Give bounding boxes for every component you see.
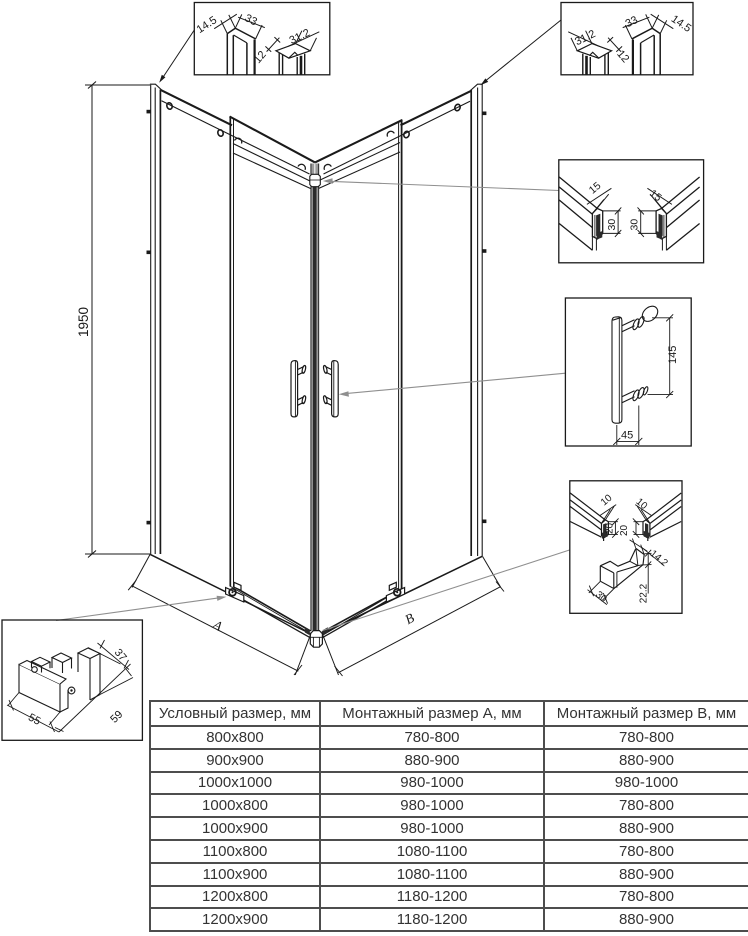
svg-text:A: A — [210, 616, 226, 634]
svg-text:30: 30 — [629, 219, 641, 231]
svg-text:B: B — [402, 610, 416, 627]
svg-text:14.5: 14.5 — [195, 14, 220, 36]
svg-text:145: 145 — [667, 346, 679, 364]
svg-text:31.2: 31.2 — [573, 28, 598, 48]
svg-text:30: 30 — [606, 219, 618, 231]
svg-text:15: 15 — [587, 180, 604, 197]
svg-text:1950: 1950 — [76, 307, 91, 337]
svg-text:31.2: 31.2 — [288, 27, 313, 47]
svg-text:10: 10 — [634, 496, 650, 512]
svg-text:14.5: 14.5 — [669, 13, 693, 35]
svg-text:14.2: 14.2 — [648, 548, 670, 569]
svg-text:20: 20 — [605, 522, 616, 534]
svg-text:10: 10 — [599, 492, 615, 508]
svg-text:55: 55 — [26, 712, 42, 728]
svg-text:33: 33 — [243, 12, 259, 28]
svg-text:45: 45 — [621, 430, 633, 442]
svg-text:22.2: 22.2 — [639, 583, 650, 603]
svg-text:33: 33 — [624, 14, 640, 30]
svg-text:59: 59 — [108, 709, 125, 726]
svg-text:30: 30 — [593, 589, 609, 605]
svg-text:20: 20 — [619, 524, 630, 536]
